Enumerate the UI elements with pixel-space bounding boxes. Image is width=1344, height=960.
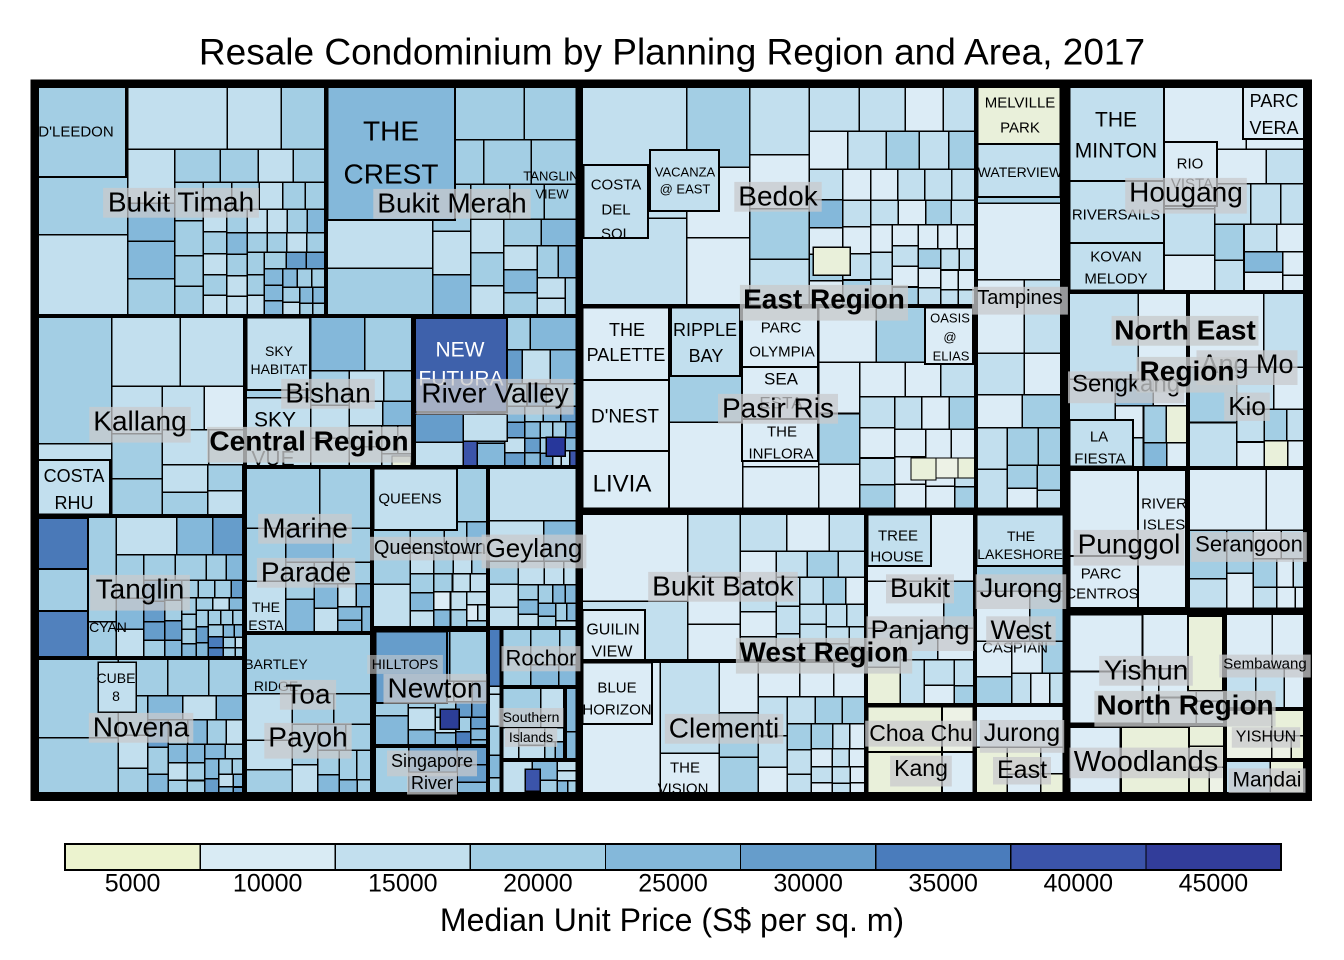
- svg-text:HORIZON: HORIZON: [582, 702, 651, 719]
- svg-text:East: East: [997, 756, 1047, 784]
- svg-text:NEW: NEW: [436, 339, 485, 362]
- svg-text:Serangoon: Serangoon: [1195, 532, 1303, 557]
- svg-text:MELVILLE: MELVILLE: [985, 95, 1056, 112]
- svg-text:TANGLIN: TANGLIN: [523, 169, 578, 184]
- svg-text:CUBE: CUBE: [97, 670, 136, 686]
- svg-text:THE: THE: [767, 424, 797, 441]
- svg-text:West Region: West Region: [739, 637, 908, 668]
- svg-text:Jurong: Jurong: [980, 573, 1063, 603]
- svg-text:PARC: PARC: [1250, 91, 1299, 111]
- svg-text:Newton: Newton: [388, 673, 483, 704]
- svg-text:35000: 35000: [908, 870, 978, 898]
- svg-text:THE: THE: [363, 116, 419, 147]
- svg-text:30000: 30000: [773, 870, 843, 898]
- svg-text:HILLTOPS: HILLTOPS: [372, 656, 438, 672]
- svg-text:North Region: North Region: [1096, 690, 1273, 721]
- svg-text:Kio: Kio: [1228, 391, 1266, 421]
- svg-text:ELIAS: ELIAS: [933, 349, 970, 364]
- svg-text:RIPPLE: RIPPLE: [673, 320, 737, 340]
- svg-text:Yishun: Yishun: [1104, 655, 1189, 686]
- svg-text:OLYMPIA: OLYMPIA: [749, 344, 815, 361]
- svg-text:GUILIN: GUILIN: [586, 622, 639, 639]
- svg-text:LA: LA: [1090, 429, 1108, 446]
- svg-text:Rochor: Rochor: [506, 646, 577, 671]
- svg-text:Novena: Novena: [93, 712, 190, 743]
- svg-text:Sembawang: Sembawang: [1223, 656, 1306, 673]
- svg-text:MINTON: MINTON: [1075, 140, 1157, 163]
- svg-text:25000: 25000: [638, 870, 708, 898]
- svg-text:Parade: Parade: [261, 557, 351, 588]
- svg-text:Central Region: Central Region: [209, 426, 408, 457]
- svg-text:RIO: RIO: [1177, 156, 1204, 173]
- svg-text:PARC: PARC: [1081, 566, 1122, 583]
- svg-text:Choa Chu: Choa Chu: [869, 720, 973, 746]
- svg-text:Bukit Merah: Bukit Merah: [377, 188, 526, 219]
- svg-text:15000: 15000: [368, 870, 438, 898]
- svg-text:Clementi: Clementi: [669, 713, 779, 744]
- svg-text:Mandai: Mandai: [1233, 769, 1302, 792]
- svg-text:Bukit: Bukit: [890, 573, 951, 603]
- svg-text:Hougang: Hougang: [1129, 177, 1243, 208]
- svg-text:THE: THE: [1095, 109, 1137, 132]
- svg-text:Region: Region: [1140, 356, 1235, 387]
- svg-text:Geylang: Geylang: [486, 533, 583, 563]
- svg-text:20000: 20000: [503, 870, 573, 898]
- svg-text:MELODY: MELODY: [1084, 271, 1147, 288]
- svg-text:Resale Condominium by Planning: Resale Condominium by Planning Region an…: [199, 32, 1145, 73]
- svg-text:QUEENS: QUEENS: [378, 491, 441, 508]
- svg-text:Tanglin: Tanglin: [96, 574, 185, 605]
- svg-text:RHU: RHU: [55, 493, 94, 513]
- svg-text:Islands: Islands: [509, 729, 553, 745]
- svg-text:10000: 10000: [233, 870, 303, 898]
- svg-text:LIVIA: LIVIA: [593, 471, 652, 498]
- svg-text:CREST: CREST: [344, 159, 439, 190]
- svg-text:Singapore: Singapore: [391, 751, 473, 771]
- svg-text:VACANZA: VACANZA: [655, 165, 716, 180]
- svg-text:LAKESHORE: LAKESHORE: [977, 546, 1063, 562]
- svg-text:D'NEST: D'NEST: [591, 407, 659, 428]
- svg-text:VERA: VERA: [1249, 118, 1298, 138]
- svg-text:THE: THE: [252, 599, 280, 615]
- svg-text:WATERVIEW: WATERVIEW: [978, 164, 1063, 180]
- svg-text:ESTA: ESTA: [248, 617, 284, 633]
- svg-text:Woodlands: Woodlands: [1074, 746, 1219, 778]
- svg-text:Southern: Southern: [503, 709, 560, 725]
- svg-text:PARC: PARC: [761, 320, 802, 337]
- svg-text:DEL: DEL: [601, 202, 630, 219]
- svg-text:River: River: [411, 773, 453, 793]
- svg-text:Tampines: Tampines: [977, 287, 1063, 309]
- svg-text:THE: THE: [670, 760, 700, 777]
- svg-text:PALETTE: PALETTE: [587, 345, 666, 365]
- svg-text:VISION: VISION: [658, 781, 709, 798]
- svg-text:45000: 45000: [1179, 870, 1249, 898]
- svg-text:Jurong: Jurong: [984, 719, 1060, 747]
- svg-text:VIEW: VIEW: [592, 644, 634, 661]
- svg-text:VIEW: VIEW: [535, 187, 569, 202]
- svg-text:COSTA: COSTA: [591, 177, 642, 194]
- svg-text:CYAN: CYAN: [89, 619, 127, 635]
- svg-text:BLUE: BLUE: [597, 680, 636, 697]
- svg-text:40000: 40000: [1044, 870, 1114, 898]
- svg-text:HABITAT: HABITAT: [250, 361, 307, 377]
- svg-text:YISHUN: YISHUN: [1236, 729, 1296, 746]
- svg-text:TREE: TREE: [878, 528, 918, 545]
- svg-text:@ EAST: @ EAST: [660, 182, 711, 197]
- svg-text:D'LEEDON: D'LEEDON: [38, 124, 113, 141]
- svg-text:FIESTA: FIESTA: [1074, 451, 1125, 468]
- svg-text:THE: THE: [1007, 528, 1035, 544]
- svg-text:Median Unit Price (S$ per sq.: Median Unit Price (S$ per sq. m): [440, 902, 904, 938]
- svg-text:North East: North East: [1114, 315, 1256, 346]
- svg-text:SKY: SKY: [265, 343, 294, 359]
- svg-text:THE: THE: [609, 320, 645, 340]
- svg-text:CENTROS: CENTROS: [1065, 586, 1138, 603]
- svg-text:COSTA: COSTA: [44, 466, 105, 486]
- svg-text:Toa: Toa: [285, 679, 331, 710]
- svg-text:BARTLEY: BARTLEY: [244, 656, 308, 672]
- svg-text:Kallang: Kallang: [93, 406, 186, 437]
- svg-text:BAY: BAY: [689, 346, 724, 366]
- svg-text:SOL: SOL: [601, 226, 631, 243]
- svg-text:Marine: Marine: [262, 513, 348, 544]
- svg-text:SEA: SEA: [764, 370, 799, 389]
- svg-text:Bishan: Bishan: [285, 378, 371, 409]
- svg-text:RIVER: RIVER: [1141, 496, 1187, 513]
- svg-text:Bedok: Bedok: [738, 181, 818, 212]
- svg-text:Pasir Ris: Pasir Ris: [722, 393, 834, 424]
- svg-text:5000: 5000: [105, 870, 161, 898]
- svg-text:INFLORA: INFLORA: [748, 446, 813, 463]
- svg-text:PARK: PARK: [1000, 120, 1040, 137]
- svg-text:River Valley: River Valley: [421, 378, 568, 409]
- svg-text:@: @: [943, 330, 956, 345]
- svg-text:HOUSE: HOUSE: [870, 549, 923, 566]
- svg-text:KOVAN: KOVAN: [1090, 249, 1141, 266]
- svg-text:8: 8: [112, 688, 120, 704]
- svg-text:OASIS: OASIS: [930, 311, 970, 326]
- svg-text:Kang: Kang: [894, 755, 948, 781]
- svg-text:Punggol: Punggol: [1078, 529, 1181, 560]
- svg-text:Payoh: Payoh: [268, 722, 347, 753]
- svg-text:Bukit Batok: Bukit Batok: [652, 571, 795, 602]
- svg-text:West: West: [990, 615, 1052, 645]
- svg-text:Queenstown: Queenstown: [374, 537, 486, 559]
- svg-text:East Region: East Region: [743, 284, 905, 315]
- svg-text:Bukit Timah: Bukit Timah: [108, 187, 254, 218]
